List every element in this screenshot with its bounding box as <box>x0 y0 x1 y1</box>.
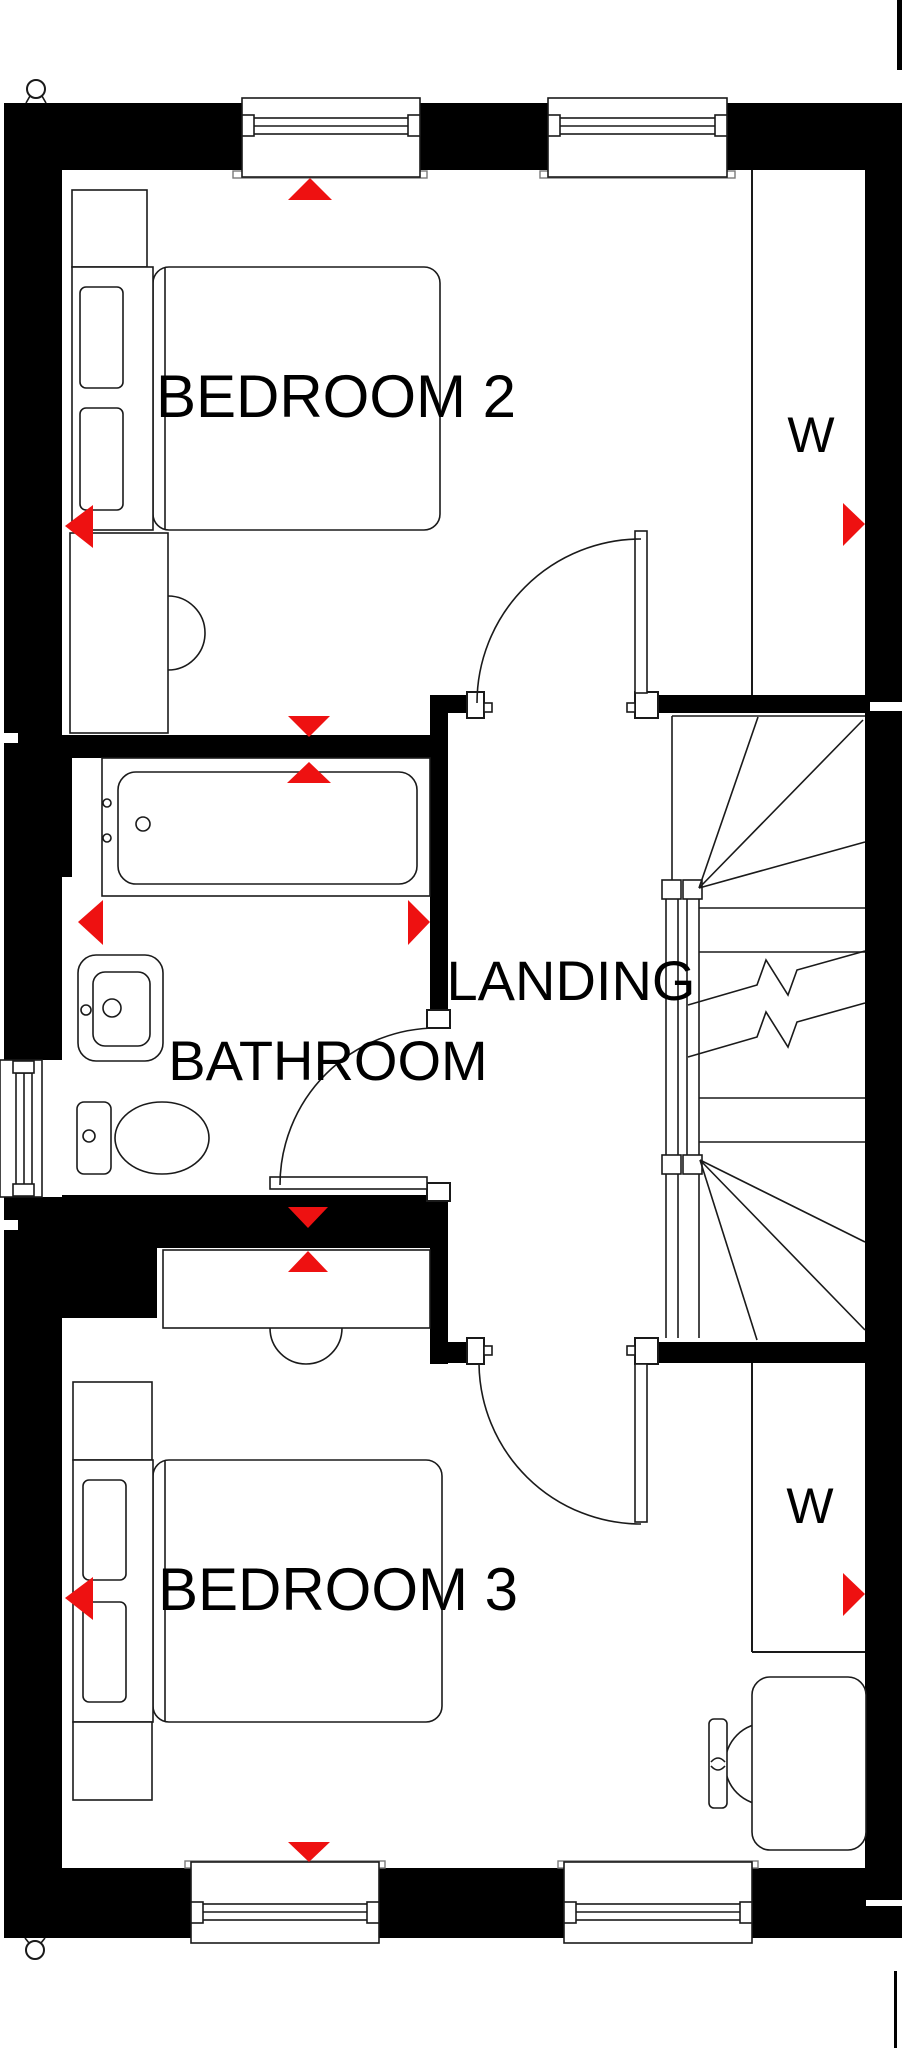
door-bedroom3 <box>467 1338 658 1524</box>
stair-break-lines <box>688 951 865 1057</box>
label-bathroom: BATHROOM <box>168 1029 487 1092</box>
door-leaf <box>635 531 647 693</box>
marker-right-icon <box>843 1573 865 1616</box>
stair-winders-bottom <box>700 1160 865 1340</box>
newel-post <box>662 1155 681 1174</box>
label-bedroom3: BEDROOM 3 <box>158 1556 518 1623</box>
marker-right-icon <box>843 503 865 546</box>
door-leaf <box>635 1364 647 1522</box>
desk-and-chair <box>709 1677 866 1850</box>
door-jamb <box>635 692 658 718</box>
stair-winders-top <box>699 717 865 888</box>
marker-left-icon <box>78 900 103 945</box>
boundary-strip-bottom <box>894 1971 897 2048</box>
door-jamb <box>467 1338 484 1364</box>
label-wardrobe-bottom: W <box>786 1478 834 1534</box>
survey-pin-top-icon <box>26 80 46 103</box>
toilet <box>77 1102 209 1174</box>
door-swing-arc <box>479 1364 641 1524</box>
pillow <box>80 408 123 510</box>
floorplan-drawing: BEDROOM 2 BATHROOM LANDING BEDROOM 3 W W <box>0 0 902 2048</box>
door-swing-arc <box>477 539 641 703</box>
door-jamb <box>467 692 484 718</box>
window-bottom-right <box>558 1861 758 1943</box>
window-top-left <box>233 98 427 178</box>
marker-up-icon <box>288 178 332 200</box>
marker-down-icon <box>288 716 330 737</box>
stair-treads <box>699 908 865 1142</box>
door-jamb <box>427 1010 450 1028</box>
chair-back <box>709 1719 727 1808</box>
dresser <box>70 533 205 733</box>
bathtub <box>102 758 430 896</box>
newel-post <box>662 880 681 899</box>
basin <box>78 955 163 1061</box>
newel-post <box>683 1155 702 1174</box>
door-leaf <box>270 1177 427 1189</box>
bedroom2-furniture <box>70 190 440 733</box>
marker-right-icon <box>408 900 430 945</box>
window-bottom-left <box>185 1861 385 1943</box>
label-wardrobe-top: W <box>787 407 835 463</box>
ottoman <box>73 1722 152 1800</box>
door-jamb <box>635 1338 658 1364</box>
door-jamb <box>427 1183 450 1201</box>
bathroom-fixtures <box>77 758 430 1174</box>
pillow <box>80 287 123 388</box>
window-top-right <box>540 98 735 178</box>
label-bedroom2: BEDROOM 2 <box>156 363 516 430</box>
survey-pin-bottom-icon <box>25 1938 45 1959</box>
desk <box>752 1677 866 1850</box>
bedside-table <box>73 1382 152 1460</box>
boundary-strip-top <box>897 0 902 70</box>
bedside-table <box>72 190 147 267</box>
floorplan-canvas: BEDROOM 2 BATHROOM LANDING BEDROOM 3 W W <box>0 0 902 2048</box>
pillow <box>83 1480 126 1580</box>
newel-post <box>683 880 702 899</box>
wardrobe-partitions <box>752 170 865 1652</box>
window-left <box>0 1060 62 1197</box>
staircase <box>662 716 865 1340</box>
marker-down-icon <box>288 1842 330 1862</box>
door-bedroom2 <box>467 531 658 718</box>
label-landing: LANDING <box>447 949 696 1012</box>
